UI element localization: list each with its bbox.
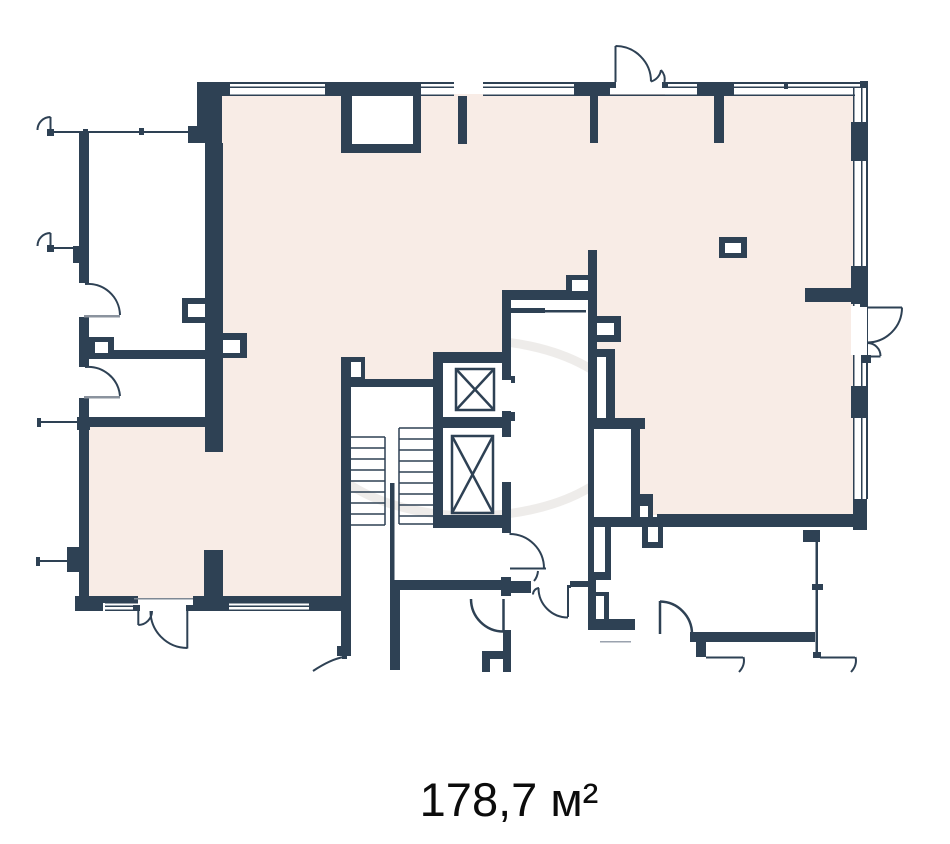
svg-text:178,7 м²: 178,7 м² (420, 773, 599, 826)
